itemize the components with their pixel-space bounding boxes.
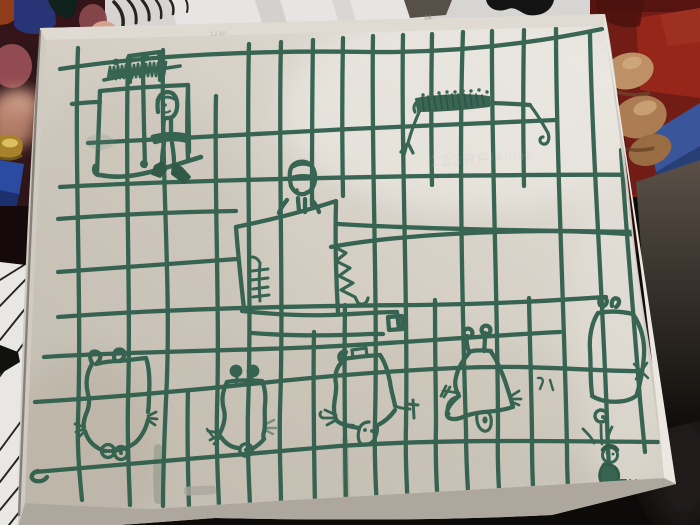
svg-text:1J 4P: 1J 4P bbox=[210, 31, 227, 38]
svg-text:Daniel: Daniel bbox=[485, 149, 531, 163]
svg-text:14: 14 bbox=[424, 15, 432, 22]
